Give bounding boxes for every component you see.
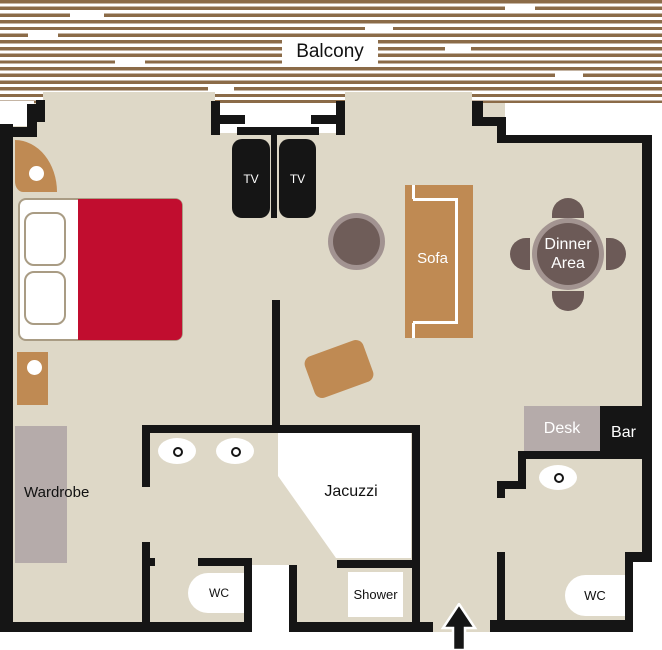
bar-label: Bar	[611, 424, 636, 442]
lamp-dot	[27, 360, 42, 375]
tv-right: TV	[279, 139, 316, 218]
wall-segment	[0, 124, 13, 632]
wall-segment	[198, 558, 252, 566]
jacuzzi-label: Jacuzzi	[303, 483, 399, 501]
wall-segment	[497, 552, 505, 625]
wall-segment	[490, 620, 633, 632]
plank-gap	[445, 46, 471, 51]
floor-plan: Balcony Wardrobe TV TV Sofa Dinner Area …	[0, 0, 662, 650]
wall-segment	[142, 425, 420, 433]
plank-gap	[505, 6, 535, 10]
wc-guest-label: WC	[584, 588, 606, 603]
sofa-seam	[412, 185, 415, 199]
exterior-gap-top-right	[505, 103, 662, 135]
wall-segment	[244, 563, 252, 632]
plank-gap	[115, 60, 145, 65]
tv-right-label: TV	[290, 172, 305, 186]
wall-segment	[497, 135, 652, 143]
sink-drain	[231, 447, 241, 457]
plank	[215, 94, 345, 97]
dinner-area-label: Dinner Area	[536, 234, 600, 274]
wall-segment	[0, 622, 248, 632]
wall-segment	[337, 560, 412, 568]
sofa-label: Sofa	[405, 249, 460, 267]
wardrobe-label: Wardrobe	[24, 483, 116, 501]
exterior-notch-bottom	[252, 565, 289, 650]
plank-gap	[555, 73, 583, 78]
toilet-bathroom: WC	[188, 573, 250, 613]
lamp-dot	[29, 166, 44, 181]
balcony-label: Balcony	[282, 37, 378, 67]
wall-segment	[36, 100, 45, 122]
bed-blanket	[78, 199, 182, 340]
wall-segment	[142, 425, 150, 487]
sink-drain	[554, 473, 564, 483]
wall-segment	[142, 542, 150, 632]
wall-segment	[642, 135, 652, 562]
tv-left: TV	[232, 139, 270, 218]
toilet-guest: WC	[565, 575, 625, 616]
plank-gap	[70, 13, 104, 17]
sofa-seam	[413, 198, 456, 201]
desk-label: Desk	[544, 420, 580, 438]
wall-segment	[311, 115, 345, 124]
wall-segment	[518, 451, 652, 459]
exterior-notch-se	[633, 562, 662, 632]
wall-segment	[497, 481, 505, 498]
plank-gap	[365, 26, 393, 31]
wall-segment	[237, 127, 319, 135]
shower-label: Shower	[353, 587, 397, 602]
wall-segment	[412, 425, 420, 632]
sofa-seam	[412, 323, 415, 338]
entrance-arrow-icon	[440, 603, 478, 650]
tv-left-label: TV	[243, 172, 258, 186]
plank-gap	[28, 33, 58, 38]
pillow	[24, 271, 66, 325]
wall-segment	[272, 300, 280, 433]
wall-segment	[211, 115, 245, 124]
wall-segment	[271, 135, 277, 218]
wall-segment	[472, 101, 483, 126]
wc-bathroom-label: WC	[209, 586, 229, 600]
sink-drain	[173, 447, 183, 457]
wall-segment	[289, 565, 297, 632]
pillow	[24, 212, 66, 266]
sofa-seam	[413, 321, 456, 324]
desk: Desk	[524, 406, 600, 452]
shower: Shower	[348, 572, 403, 617]
plank-gap	[208, 87, 234, 91]
wall-segment	[625, 552, 633, 630]
coffee-table-top	[333, 218, 380, 265]
wall-segment	[142, 558, 155, 566]
